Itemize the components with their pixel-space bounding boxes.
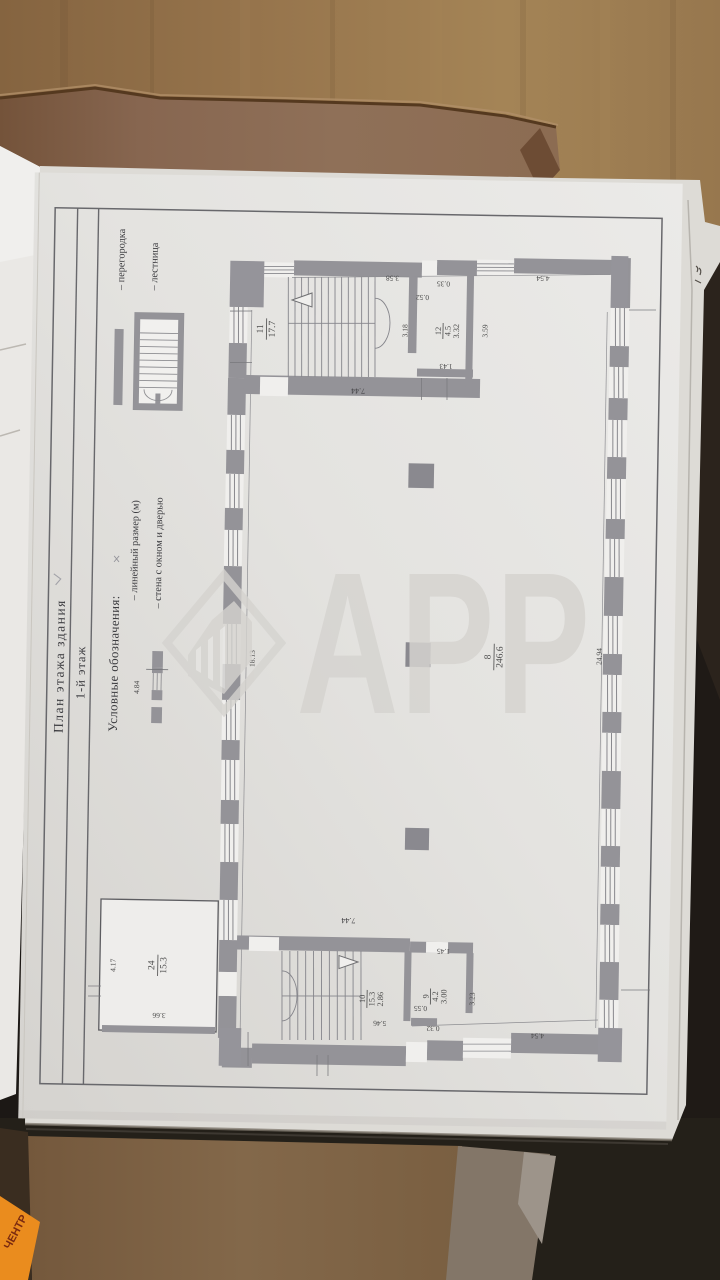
svg-text:10: 10 [358, 995, 367, 1003]
svg-text:3.58: 3.58 [386, 274, 400, 283]
svg-text:– стена с окном и дверью: – стена с окном и дверью [153, 497, 166, 610]
svg-text:– линейный размер (м): – линейный размер (м) [129, 500, 142, 601]
svg-text:9: 9 [421, 994, 430, 998]
svg-text:24: 24 [147, 960, 157, 970]
svg-text:0.52: 0.52 [416, 293, 430, 302]
svg-text:5.46: 5.46 [373, 1019, 387, 1028]
svg-text:17.7: 17.7 [268, 320, 278, 337]
svg-text:7.44: 7.44 [341, 916, 355, 925]
svg-text:15.3: 15.3 [159, 957, 169, 974]
svg-text:4.54: 4.54 [531, 1031, 545, 1040]
svg-text:4.84: 4.84 [132, 680, 141, 694]
svg-text:4.54: 4.54 [536, 274, 550, 283]
svg-text:1-й этаж: 1-й этаж [73, 646, 88, 700]
svg-text:0.32: 0.32 [426, 1024, 440, 1033]
svg-text:12: 12 [434, 327, 443, 335]
svg-text:3.59: 3.59 [480, 324, 489, 338]
svg-text:24.94: 24.94 [594, 648, 603, 665]
svg-text:7.44: 7.44 [351, 386, 365, 395]
svg-text:План этажа здания: План этажа здания [51, 599, 68, 733]
svg-text:3.66: 3.66 [152, 1011, 166, 1020]
svg-text:3.32: 3.32 [452, 324, 461, 339]
svg-text:2.86: 2.86 [376, 992, 385, 1007]
svg-text:3.18: 3.18 [400, 324, 409, 338]
svg-text:4.17: 4.17 [108, 958, 117, 972]
svg-text:Условные обозначения:: Условные обозначения: [106, 595, 122, 732]
svg-text:– перегородка: – перегородка [116, 228, 128, 291]
svg-text:0.35: 0.35 [437, 279, 451, 288]
svg-text:0.55: 0.55 [414, 1004, 428, 1013]
svg-text:1.43: 1.43 [439, 362, 453, 371]
svg-text:11: 11 [256, 324, 266, 334]
svg-text:– лестница: – лестница [149, 242, 161, 291]
svg-text:1.45: 1.45 [437, 947, 451, 956]
svg-text:АРР: АРР [297, 530, 592, 756]
svg-text:3.23: 3.23 [467, 992, 476, 1006]
svg-text:3.00: 3.00 [439, 989, 448, 1004]
